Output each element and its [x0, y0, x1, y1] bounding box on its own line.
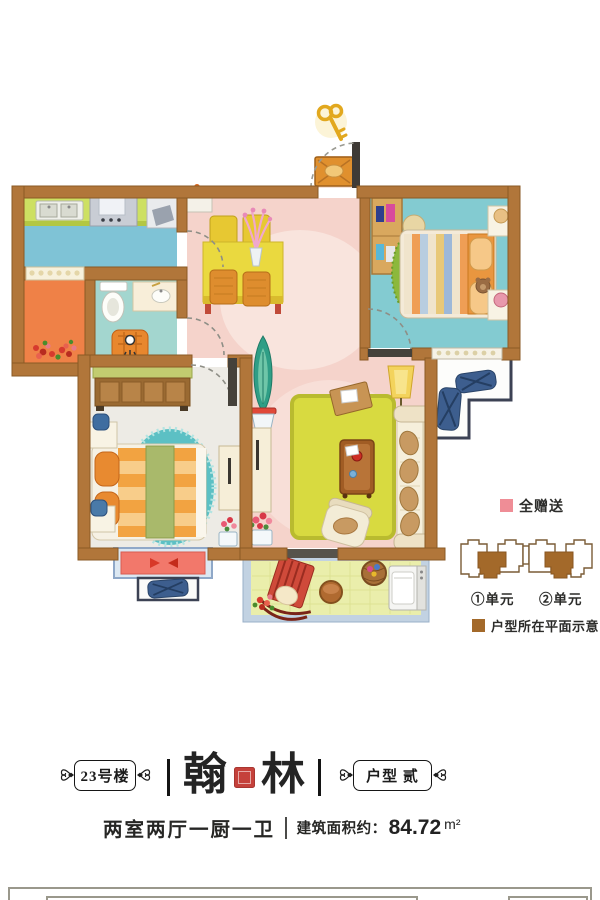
ornament-icon	[137, 765, 151, 786]
project-name-char-2: 林	[259, 753, 307, 797]
lamp-main-1	[494, 209, 508, 223]
dresser-leg-2	[180, 406, 188, 411]
range-hood	[99, 196, 125, 215]
bottom-frame-top	[8, 887, 592, 889]
floorplan-page: 全赠送 ①单元 ②单元 户型所在平面示意 23号楼 翰 林 户型 贰	[0, 0, 600, 900]
bay-window	[114, 548, 212, 600]
bedroom-main-door-panel	[368, 349, 412, 357]
bottom-frame-inner-1	[46, 896, 418, 898]
bedroom-second-door-panel	[228, 358, 237, 406]
cabinet-center	[325, 165, 343, 177]
burner-3	[117, 218, 121, 222]
lamp-second-2	[91, 500, 107, 516]
drawer-4	[166, 382, 185, 402]
layout-text: 两室两厅一厨一卫	[103, 813, 275, 842]
ac-platform	[433, 358, 511, 438]
drawer-2	[122, 382, 141, 402]
pillow-second-1	[95, 452, 119, 486]
title-divider-left	[167, 759, 170, 796]
plan-note-swatch	[472, 619, 485, 632]
area-unit: m²	[444, 813, 460, 832]
toilet-bowl	[107, 298, 119, 316]
frame-tick-4	[586, 896, 588, 900]
stand-top	[126, 336, 135, 345]
entry-door-panel	[352, 142, 360, 188]
lamp-second-1	[93, 414, 109, 430]
dresser-top	[93, 366, 192, 378]
dining-chair-3	[210, 270, 237, 304]
laundry-basket	[362, 561, 386, 585]
bottom-frame-left	[8, 887, 10, 900]
burner-2	[109, 218, 113, 222]
side-balcony-floor	[24, 280, 85, 363]
balcony	[243, 549, 429, 626]
seal-inner	[238, 771, 251, 784]
tower-connector	[523, 546, 529, 564]
frame-tick-2	[416, 896, 418, 900]
balcony-door-track	[287, 549, 338, 558]
unit-2-label: ②单元	[539, 588, 583, 608]
kitchen	[24, 196, 178, 228]
dresser-leg-1	[96, 406, 104, 411]
burner-1	[101, 218, 105, 222]
project-name-char-1: 翰	[181, 753, 229, 797]
bottom-frame-right	[590, 887, 592, 900]
coffee-table	[340, 440, 374, 499]
clothes-3	[376, 244, 384, 260]
cabinet-handle-1	[256, 440, 259, 470]
clothes-1	[376, 206, 384, 222]
unit-diagram	[452, 536, 598, 582]
table-leg-2	[275, 304, 281, 314]
dining-chair-4	[243, 272, 270, 306]
unit-footprint-2	[545, 552, 573, 578]
entrance	[311, 106, 360, 189]
clothes-2	[386, 204, 395, 222]
key-icon	[315, 106, 347, 140]
ornament-icon	[339, 765, 353, 786]
balcony-table	[320, 581, 342, 603]
washing-machine	[389, 566, 426, 610]
bed-main-stripes	[404, 234, 468, 314]
frame-tick-1	[46, 896, 48, 900]
area-label: 建筑面积约：	[297, 817, 387, 838]
vanity-faucet	[160, 290, 163, 293]
unit-footprint-1	[478, 552, 506, 578]
ornament-icon	[60, 765, 74, 786]
seal-stamp	[234, 767, 255, 788]
gift-legend-swatch	[500, 499, 513, 512]
bed-fold	[196, 448, 206, 537]
unit-1-label: ①单元	[471, 588, 515, 608]
spec-line: 两室两厅一厨一卫 建筑面积约： 84.72 m²	[103, 813, 461, 842]
unit-type-badge: 户型 贰	[353, 760, 432, 791]
table-leg-1	[205, 304, 211, 314]
title-divider-right	[318, 759, 321, 796]
area-value: 84.72	[389, 816, 442, 840]
drawer-1	[100, 382, 119, 402]
building-badge: 23号楼	[74, 760, 136, 791]
ornament-icon	[433, 765, 447, 786]
pillow-main-1	[470, 238, 492, 270]
spec-divider	[285, 817, 287, 839]
bay-ac-unit	[147, 579, 188, 599]
faucet-dot	[48, 206, 51, 209]
drawer-3	[144, 382, 163, 402]
gift-legend-label: 全赠送	[519, 496, 564, 516]
bottom-frame-inner-2	[508, 896, 588, 898]
ac-unit-2	[436, 387, 462, 431]
toilet-tank	[100, 282, 127, 291]
frame-tick-3	[508, 896, 510, 900]
bay-window-mat	[121, 552, 205, 574]
bed-runner	[146, 446, 174, 538]
cabinet-handle-2	[228, 458, 231, 484]
plan-note-label: 户型所在平面示意	[491, 616, 599, 635]
faucet-dot-2	[68, 206, 71, 209]
lamp-main-2	[494, 293, 508, 307]
